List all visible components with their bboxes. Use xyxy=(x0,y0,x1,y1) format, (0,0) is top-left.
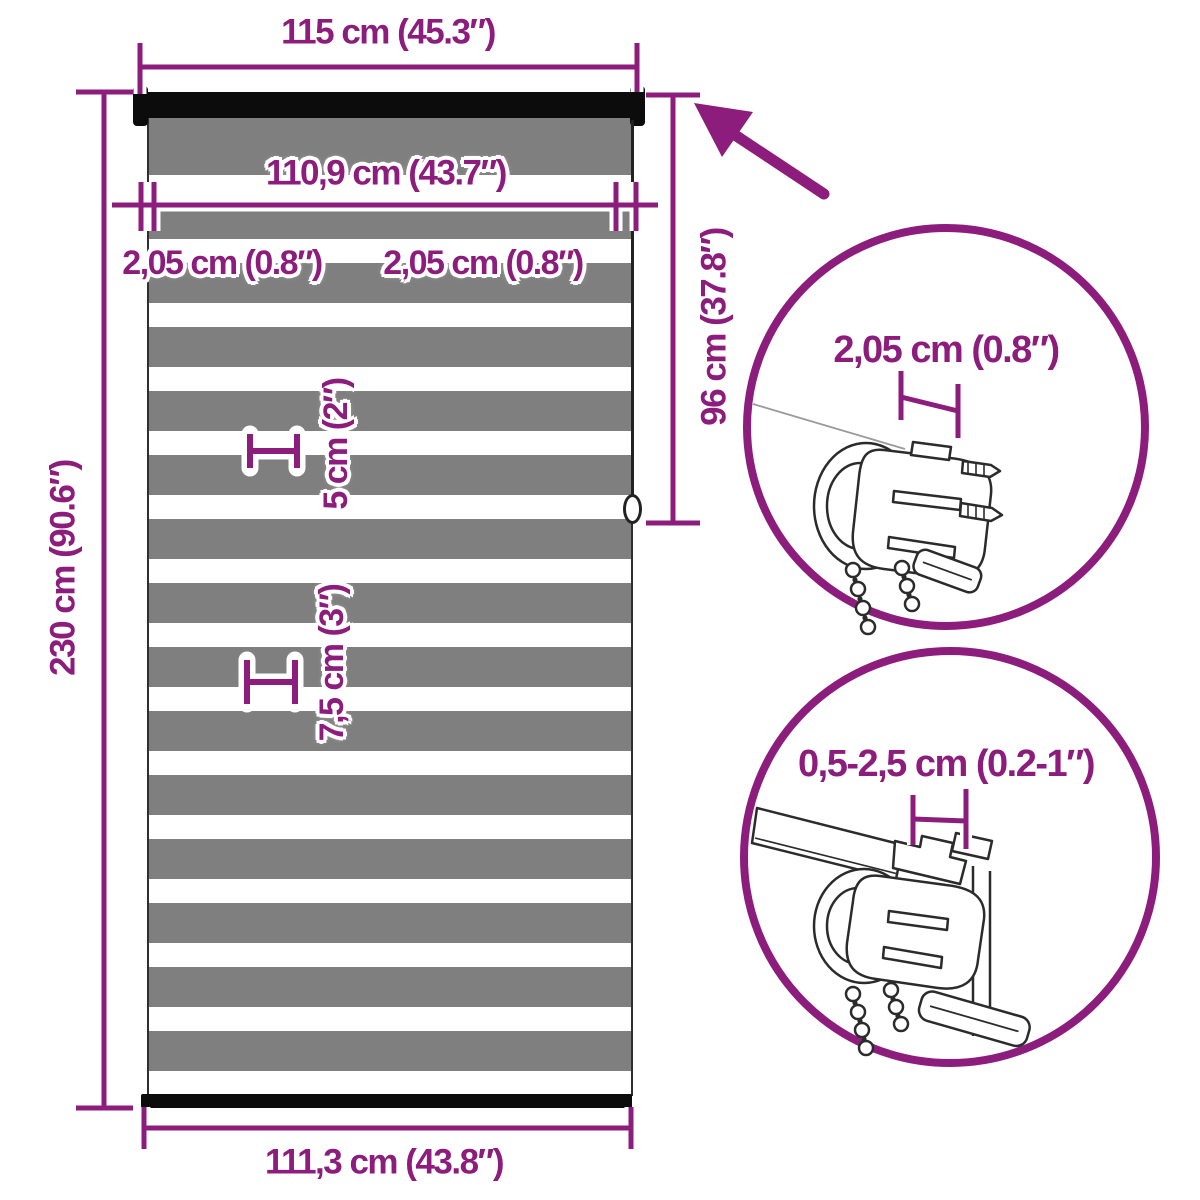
label-drop-height: 96 cm (37.8″) xyxy=(697,228,732,426)
label-mount-depth: 0,5-2,5 cm (0.2-1″) xyxy=(798,745,1094,783)
label-offset-left: 2,05 cm (0.8″) xyxy=(122,246,321,280)
stripe-marker-7-5cm xyxy=(247,660,295,704)
label-offset-right: 2,05 cm (0.8″) xyxy=(383,246,582,280)
blind-dimension-diagram: 115 cm (45.3″) 110,9 cm (43.7″) 2,05 cm … xyxy=(0,0,1200,1200)
zoom-arrow-icon xyxy=(694,103,824,194)
label-bottom-width: 111,3 cm (43.8″) xyxy=(265,1145,503,1180)
label-total-height: 230 cm (90.6″) xyxy=(46,460,81,676)
label-stripe-large: 7,5 cm (3″) xyxy=(315,585,349,742)
label-top-width: 115 cm (45.3″) xyxy=(281,15,495,50)
stripe-marker-5cm xyxy=(250,434,297,468)
label-inner-width: 110,9 cm (43.7″) xyxy=(266,156,506,191)
label-bracket-width: 2,05 cm (0.8″) xyxy=(833,331,1058,369)
label-stripe-small: 5 cm (2″) xyxy=(319,378,353,509)
dimension-overlay xyxy=(0,0,1200,1200)
dim-line-right-height xyxy=(646,95,700,523)
